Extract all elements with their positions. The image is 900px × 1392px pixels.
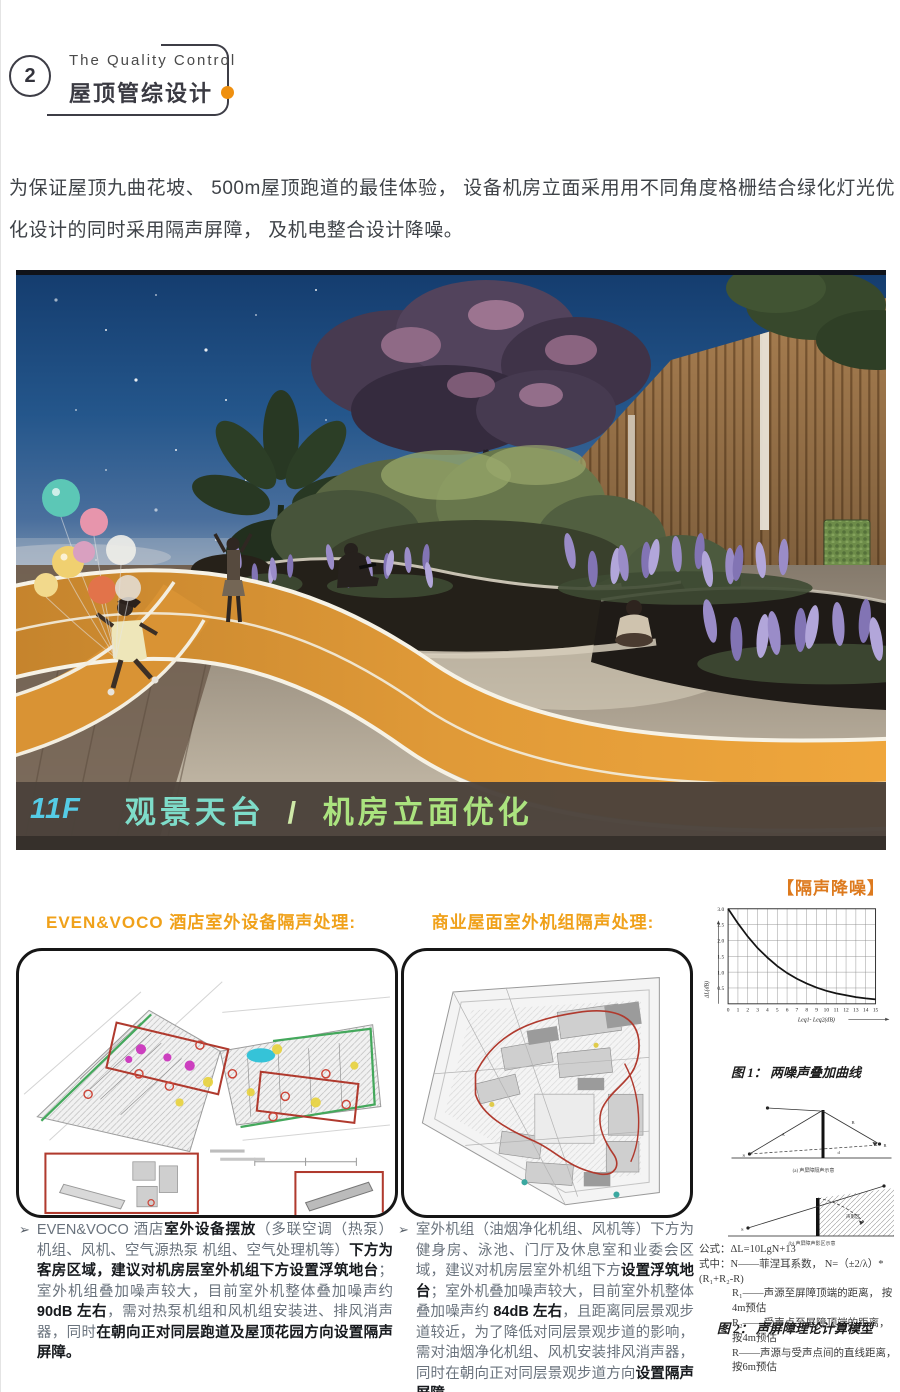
hotel-roof-plan-figure (16, 948, 398, 1218)
hero-caption-separator: / (287, 795, 300, 830)
commercial-roof-plan-figure (401, 948, 693, 1218)
svg-text:1: 1 (737, 1008, 740, 1014)
hotel-noise-bullet: ➢ EVEN&VOCO 酒店室外设备摆放（多联空调（热泵）机组、风机、空气源热泵… (19, 1220, 393, 1364)
svg-text:7: 7 (796, 1008, 799, 1014)
svg-text:1.5: 1.5 (717, 954, 724, 960)
commercial-noise-text: 室外机组（油烟净化机组、风机等）下方为健身房、泳池、门厅及休息室和业委会区域，建… (416, 1220, 694, 1392)
right-column-heading: 商业屋面室外机组隔声处理: (393, 908, 693, 933)
section-number: 2 (24, 65, 35, 88)
hotel-roof-plan-art (19, 951, 395, 1215)
commercial-noise-bullet: ➢ 室外机组（油烟净化机组、风机等）下方为健身房、泳池、门厅及休息室和业委会区域… (398, 1220, 694, 1392)
hotel-noise-text: EVEN&VOCO 酒店室外设备摆放（多联空调（热泵）机组、风机、空气源热泵 机… (37, 1220, 393, 1364)
figure1-caption: 图 1： 两噪声叠加曲线 (699, 1062, 893, 1081)
formula-note-r: R——声源与受声点间的直线距离， 按6m预估 (699, 1347, 899, 1377)
figure1-chart-svg: 01234567891011121314150.51.01.52.02.53.0… (699, 901, 893, 1031)
svg-text:0.5: 0.5 (717, 986, 724, 992)
svg-text:(a) 声屏障隔声示意: (a) 声屏障隔声示意 (793, 1167, 835, 1174)
svg-text:12: 12 (843, 1008, 849, 1014)
svg-text:9: 9 (815, 1008, 818, 1014)
document-page: 2 The Quality Control 屋顶管综设计 为保证屋顶九曲花坡、 … (0, 0, 900, 1392)
intro-paragraph: 为保证屋顶九曲花坡、 500m屋顶跑道的最佳体验， 设备机房立面采用用不同角度格… (9, 168, 895, 252)
bracket-mask (45, 42, 161, 48)
formula-where: 式中：N——菲涅耳系数， N=（±2/λ）*(R₁+R₂-R) (699, 1258, 899, 1288)
hero-caption-sub: 机房立面优化 (323, 795, 533, 830)
barrier-diagram-a: S R A B d (a) 声屏障隔声示意 (729, 1096, 895, 1178)
svg-text:2.5: 2.5 (717, 923, 724, 929)
section-number-badge: 2 (9, 55, 51, 97)
svg-text:0: 0 (727, 1008, 730, 1014)
figure2-caption: 图 2： 声屏障理论计算模型 (691, 1318, 899, 1337)
svg-text:3: 3 (756, 1008, 759, 1014)
svg-text:S: S (741, 1227, 744, 1232)
hero-caption: 观景天台 / 机房立面优化 (125, 787, 533, 832)
svg-text:3.0: 3.0 (717, 907, 724, 913)
wall-light-post (760, 320, 769, 530)
floor-label: 11F (30, 793, 81, 826)
barrier-formula-block: 公式：ΔL=10LgN+13 式中：N——菲涅耳系数， N=（±2/λ）*(R₁… (699, 1243, 899, 1376)
svg-text:13: 13 (853, 1008, 859, 1014)
hero-caption-main: 观景天台 (125, 795, 265, 830)
svg-text:10: 10 (824, 1008, 830, 1014)
svg-text:S: S (743, 1153, 746, 1158)
bullet-arrow-icon: ➢ (19, 1220, 30, 1364)
rooftop-render-image: 11F 观景天台 / 机房立面优化 (16, 270, 886, 850)
svg-text:11: 11 (834, 1008, 840, 1014)
svg-text:6: 6 (786, 1008, 789, 1014)
svg-text:5: 5 (776, 1008, 779, 1014)
svg-text:Leq1- Leq2(dB): Leq1- Leq2(dB) (797, 1016, 835, 1023)
svg-text:B: B (852, 1120, 855, 1125)
section-title-en: The Quality Control (69, 52, 236, 69)
hero-caption-bar: 11F 观景天台 / 机房立面优化 (16, 782, 886, 836)
svg-text:14: 14 (863, 1008, 869, 1014)
orange-dot-icon (221, 86, 234, 99)
svg-text:R: R (884, 1143, 888, 1148)
commercial-roof-plan-art (404, 951, 690, 1215)
left-column-heading: EVEN&VOCO 酒店室外设备隔声处理: (11, 908, 391, 933)
svg-text:声影区: 声影区 (846, 1213, 860, 1220)
section-title-bracket: The Quality Control 屋顶管综设计 (47, 44, 229, 116)
section-tag: 【隔声降噪】 (777, 874, 885, 899)
rooftop-render-art (16, 270, 886, 850)
formula-note-r1: R₁——声源至屏障顶端的距离， 按4m预估 (699, 1287, 899, 1317)
bullet-arrow-icon: ➢ (398, 1220, 409, 1392)
svg-text:2.0: 2.0 (717, 939, 724, 945)
svg-text:8: 8 (805, 1008, 808, 1014)
svg-text:ΔL(dB): ΔL(dB) (704, 981, 711, 999)
barrier-diagram-b: S 声影区 (b) 声屏障声影区示意 (725, 1178, 897, 1248)
formula-line: 公式：ΔL=10LgN+13 (699, 1243, 899, 1258)
section-title-zh-text: 屋顶管综设计 (69, 76, 213, 108)
svg-text:15: 15 (873, 1008, 879, 1014)
svg-text:1.0: 1.0 (717, 970, 724, 976)
noise-superposition-chart: 01234567891011121314150.51.01.52.02.53.0… (699, 901, 893, 1053)
svg-text:2: 2 (746, 1008, 749, 1014)
svg-text:d: d (838, 1150, 841, 1155)
section-title-zh: 屋顶管综设计 (69, 76, 234, 108)
svg-text:4: 4 (766, 1008, 769, 1014)
